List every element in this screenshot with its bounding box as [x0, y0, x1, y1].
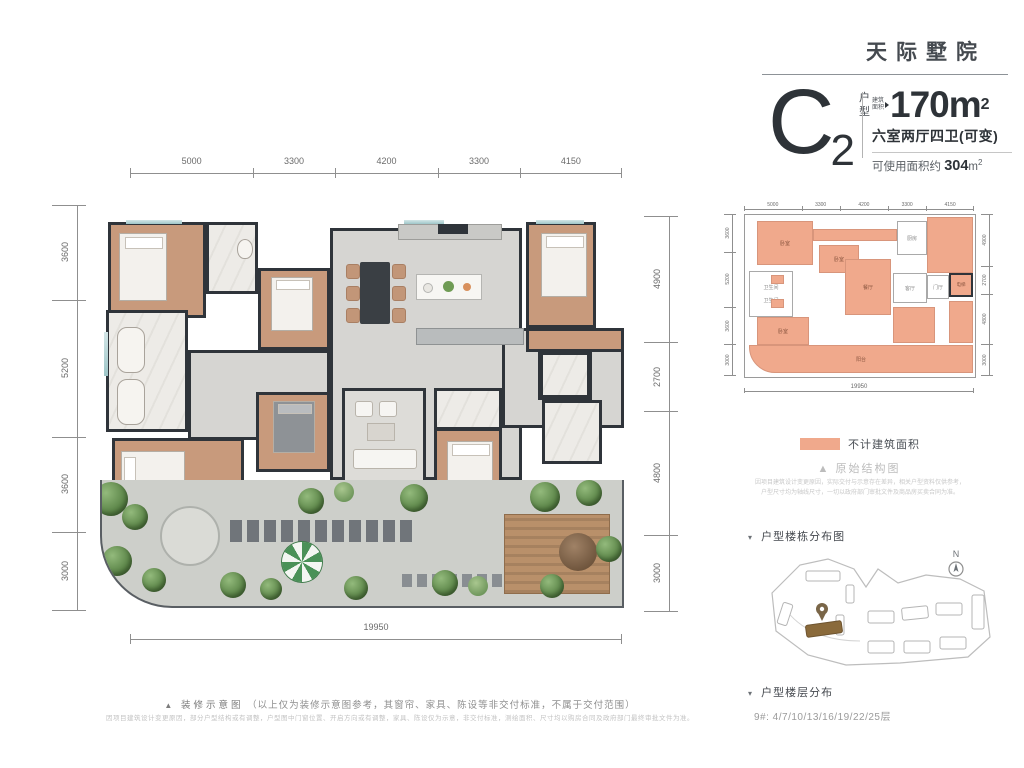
mini-area-strip	[813, 229, 897, 241]
usable-area: 可使用面积约 304m2	[872, 158, 1012, 174]
living-room	[342, 388, 426, 484]
building-footprint	[972, 595, 984, 629]
building-footprint	[868, 611, 894, 623]
usable-value: 304	[944, 158, 968, 174]
window-icon	[104, 332, 108, 376]
dim-segment: 3000	[52, 532, 78, 611]
mini-room-bedroom: 卧室	[757, 317, 809, 345]
building-footprint	[940, 637, 966, 649]
bed-icon	[119, 233, 167, 301]
structure-diagram: 5000 3300 4200 3300 4150 3600 5200 3600 …	[733, 202, 985, 404]
dim-label: 3300	[438, 156, 519, 166]
triangle-marker-icon: ▲	[164, 701, 173, 710]
mini-balcony: 阳台	[749, 345, 973, 373]
dim-label: 4150	[520, 156, 622, 166]
floors-panel-title-text: 户型楼层分布	[761, 687, 833, 699]
decor-disclaimer: ▲ 装修示意图 （以上仅为装修示意图参考，其窗帘、家具、陈设等非交付标准，不属于…	[60, 697, 740, 711]
dim-label: 5200	[60, 358, 70, 378]
dim-label: 4800	[982, 314, 988, 325]
dim-label: 3600	[60, 474, 70, 494]
bathtub-icon	[117, 327, 145, 373]
kitchen-counter-lower	[416, 328, 524, 345]
structure-note-line1: 因项目建筑设计变更原因，实际交付与示意存在差异，相关户型资料仅供参考，	[755, 480, 965, 486]
mini-plan-body: 卧室 卧室 卫生间 卫生间 餐厅 厨房 客厅 门厅 电梯 卧室 阳台	[744, 214, 976, 378]
bedroom-top-left	[108, 222, 206, 318]
dim-label: 4900	[982, 234, 988, 245]
plate-icon	[423, 283, 433, 293]
bathroom-right	[542, 400, 602, 464]
tree-icon	[530, 482, 560, 512]
brand-title: 天际墅院	[700, 36, 986, 66]
dim-top: 5000 3300 4200 3300 4150	[130, 156, 622, 174]
building-footprint	[868, 641, 894, 653]
dim-segment: 5200	[724, 252, 733, 307]
bed-icon	[271, 277, 313, 331]
dim-label: 4150	[926, 202, 974, 208]
bathrooms-left	[106, 310, 188, 432]
structure-title: ▲ 原始结构图	[733, 460, 985, 476]
bed-icon	[541, 233, 587, 297]
structure-title-text: 原始结构图	[835, 463, 900, 475]
area-tag-line2: 面积	[872, 105, 884, 111]
dim-segment: 19950	[130, 622, 622, 640]
area-arrow-icon	[885, 102, 889, 108]
unit-type-tag-char2: 型	[859, 106, 870, 120]
dim-label: 3000	[652, 563, 662, 583]
kitchen-island	[416, 274, 482, 300]
tree-icon	[260, 578, 282, 600]
tree-icon	[298, 488, 324, 514]
dim-bottom: 19950	[130, 622, 622, 640]
dim-segment: 4800	[981, 294, 990, 345]
tree-icon	[432, 570, 458, 596]
dim-label: 2700	[652, 367, 662, 387]
bedroom-top-right	[526, 222, 596, 328]
dim-segment: 5000	[130, 156, 253, 174]
dim-label: 3000	[982, 355, 988, 366]
chair-icon	[346, 286, 360, 301]
dim-label: 5000	[744, 202, 802, 208]
dim-label: 3300	[802, 202, 840, 208]
dim-label: 5000	[130, 156, 253, 166]
dim-label: 4200	[335, 156, 439, 166]
legend: 不计建筑面积	[800, 436, 920, 452]
triangle-marker-icon: ▲	[818, 463, 831, 475]
dim-segment: 3600	[724, 214, 733, 252]
chair-icon	[392, 264, 406, 279]
dim-segment: 2700	[644, 342, 670, 411]
compass-label: N	[953, 549, 960, 559]
unit-type-tag-char1: 户	[859, 92, 870, 106]
bathroom-center	[434, 388, 502, 430]
tree-icon	[220, 572, 246, 598]
toilet-icon	[237, 239, 253, 259]
area-sup: 2	[981, 97, 990, 113]
chair-icon	[392, 308, 406, 323]
dim-segment: 5200	[52, 300, 78, 437]
dim-segment: 3000	[724, 344, 733, 376]
dim-label: 3300	[253, 156, 334, 166]
mini-area-right	[949, 301, 973, 343]
building-footprint	[936, 603, 962, 615]
fine-print: 因项目建筑设计变更原因，部分户型结构或有调整，户型图中门窗位置、开启方向或有调整…	[60, 712, 740, 722]
structure-note: 因项目建筑设计变更原因，实际交付与示意存在差异，相关户型资料仅供参考， 户型尺寸…	[738, 479, 982, 498]
mini-elevator: 电梯	[949, 273, 973, 297]
dim-label: 3300	[888, 202, 926, 208]
dim-label: 4800	[652, 463, 662, 483]
main-floor-plan	[98, 192, 626, 612]
tree-icon	[102, 546, 132, 576]
dim-segment: 3000	[644, 535, 670, 612]
compass-icon: N	[949, 549, 963, 576]
bed-icon	[273, 401, 315, 453]
unit-type-letter: C	[768, 80, 834, 165]
legend-swatch	[800, 438, 840, 450]
dim-label: 19950	[744, 384, 974, 390]
tree-icon	[400, 484, 428, 512]
dim-label: 5200	[725, 274, 731, 285]
dim-segment: 4200	[335, 156, 439, 174]
dim-segment: 4900	[644, 216, 670, 342]
dim-label: 2700	[982, 274, 988, 285]
site-plan-map: N	[750, 545, 1002, 675]
building-footprint	[901, 606, 928, 621]
dim-segment: 3600	[724, 307, 733, 345]
armchair-icon	[379, 401, 397, 417]
mini-room-bedroom: 卧室	[757, 221, 813, 265]
dim-label: 3600	[725, 320, 731, 331]
dim-segment: 3600	[52, 205, 78, 300]
dim-segment: 4800	[644, 411, 670, 534]
building-footprint	[904, 641, 930, 653]
dim-label: 4200	[840, 202, 888, 208]
usable-sup: 2	[978, 158, 982, 167]
site-panel-title-text: 户型楼栋分布图	[761, 531, 845, 543]
unit-type-badge: C 2 户 型	[768, 80, 870, 176]
bathroom-top	[206, 222, 258, 294]
usable-prefix: 可使用面积约	[872, 161, 944, 173]
area-tag: 建筑 面积	[872, 98, 884, 112]
chair-icon	[392, 286, 406, 301]
dim-segment: 3300	[253, 156, 334, 174]
chair-icon	[346, 264, 360, 279]
building-footprint	[846, 585, 854, 603]
info-divider	[872, 152, 1012, 153]
stove-icon	[438, 224, 468, 234]
mini-area-topright	[927, 217, 973, 273]
structure-note-line2: 户型尺寸均为轴线尺寸，一切以政府部门审批文件及商品房买卖合同为准。	[761, 490, 959, 496]
dim-label: 3600	[725, 227, 731, 238]
dim-segment: 3300	[438, 156, 519, 174]
area-tag-line1: 建筑	[872, 98, 884, 104]
dim-segment: 4200	[840, 202, 888, 210]
window-icon	[404, 220, 444, 224]
dim-segment: 4150	[926, 202, 974, 210]
food-plate-icon	[443, 281, 454, 292]
tree-icon	[122, 504, 148, 530]
dining-table-icon	[360, 262, 390, 324]
unit-type-tag: 户 型	[859, 92, 870, 120]
building-footprint	[806, 571, 840, 581]
dim-label: 3000	[725, 355, 731, 366]
unit-type-number: 2	[830, 126, 854, 176]
dim-segment: 3300	[888, 202, 926, 210]
floors-list: 9#: 4/7/10/13/16/19/22/25层	[754, 708, 891, 723]
tree-icon	[596, 536, 622, 562]
mini-room-living: 客厅	[893, 273, 927, 303]
mini-dim-top: 5000 3300 4200 3300 4150	[744, 202, 974, 210]
legend-label: 不计建筑面积	[848, 436, 920, 452]
mini-area-bit	[771, 275, 784, 284]
elevator-shaft	[538, 350, 592, 400]
dim-segment: 5000	[744, 202, 802, 210]
floors-panel-title: ▾ 户型楼层分布	[748, 684, 833, 700]
dim-segment: 3300	[802, 202, 840, 210]
paver-path	[230, 520, 414, 542]
tree-icon	[142, 568, 166, 592]
mini-area-bit	[771, 299, 784, 308]
dim-segment: 3600	[52, 437, 78, 532]
mini-dim-bottom: 19950	[744, 384, 974, 392]
dim-label: 3000	[60, 561, 70, 581]
dim-segment: 4900	[981, 214, 990, 266]
unit-card-divider	[862, 92, 863, 158]
mini-dim-left: 3600 5200 3600 3000	[724, 214, 733, 376]
bathtub-icon	[117, 379, 145, 425]
mini-room-kitchen: 厨房	[897, 221, 927, 255]
building-footprint	[777, 602, 793, 626]
garden-terrace	[100, 480, 624, 608]
bush-icon	[334, 482, 354, 502]
tree-icon	[344, 576, 368, 600]
unit-info: 建筑 面积 170m 2 六室两厅四卫(可变) 可使用面积约 304m2	[872, 86, 1012, 174]
dim-segment: 3000	[981, 344, 990, 376]
decor-title: 装修示意图	[181, 700, 244, 711]
dim-label: 3600	[60, 242, 70, 262]
gazebo-icon	[559, 533, 597, 571]
dim-segment: 2700	[981, 266, 990, 294]
decor-note: （以上仅为装修示意图参考，其窗帘、家具、陈设等非交付标准，不属于交付范围）	[247, 700, 636, 711]
tree-icon	[576, 480, 602, 506]
stone-patio	[160, 506, 220, 566]
window-icon	[536, 220, 584, 224]
sofa-icon	[353, 449, 417, 469]
dim-right: 4900 2700 4800 3000	[644, 216, 670, 612]
bedroom-center	[256, 392, 330, 472]
bush-icon	[468, 576, 488, 596]
coffee-table-icon	[367, 423, 395, 441]
site-panel-title: ▾ 户型楼栋分布图	[748, 528, 845, 544]
area-row: 建筑 面积 170m 2	[872, 86, 1012, 123]
dim-label: 19950	[130, 622, 622, 632]
window-icon	[126, 220, 182, 224]
mini-dim-right: 4900 2700 4800 3000	[981, 214, 990, 376]
location-pin-icon	[816, 603, 828, 621]
plate-icon	[463, 283, 471, 291]
floorplan-poster: 天际墅院 C 2 户 型 建筑 面积 170m 2 六室两厅四卫(可变) 可使用…	[0, 0, 1024, 768]
usable-unit: m	[968, 161, 978, 173]
mini-area-bottomright	[893, 307, 935, 343]
mini-room-foyer: 门厅	[927, 275, 949, 299]
umbrella-icon	[282, 542, 322, 582]
dim-segment: 19950	[744, 384, 974, 392]
dim-label: 4900	[652, 269, 662, 289]
armchair-icon	[355, 401, 373, 417]
bedroom-2	[258, 268, 330, 350]
corridor-right	[526, 328, 624, 352]
triangle-marker-icon: ▾	[748, 689, 753, 698]
rooms-summary: 六室两厅四卫(可变)	[872, 126, 1012, 146]
tree-icon	[540, 574, 564, 598]
triangle-marker-icon: ▾	[748, 533, 753, 542]
chair-icon	[346, 308, 360, 323]
area-value: 170m	[890, 86, 981, 123]
dim-segment: 4150	[520, 156, 622, 174]
mini-room-dining: 餐厅	[845, 259, 891, 315]
dim-left: 3600 5200 3600 3000	[52, 205, 78, 611]
